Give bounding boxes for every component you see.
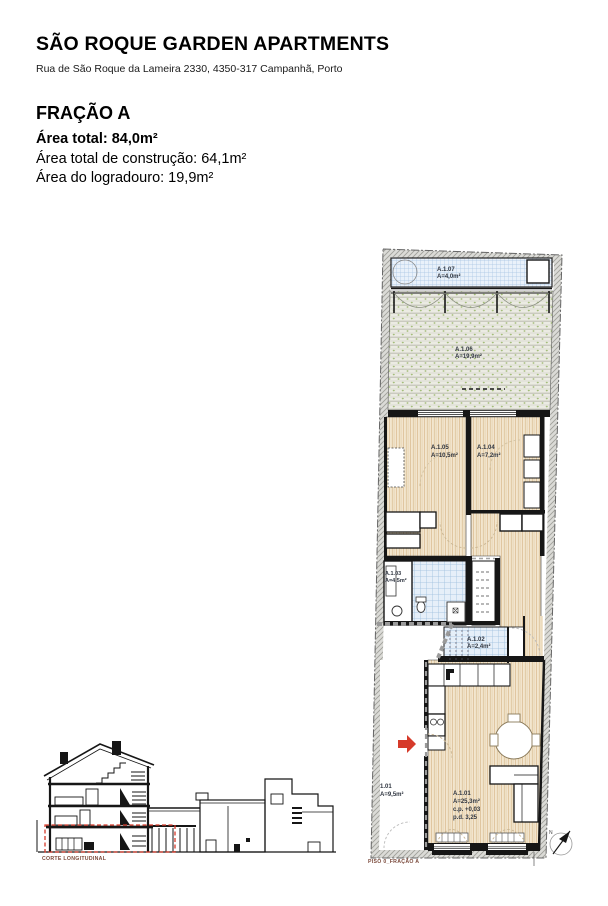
datasheet-page: SÃO ROQUE GARDEN APARTMENTS Rua de São R…: [0, 0, 608, 906]
section-caption: CORTE LONGITUDINAL: [42, 856, 107, 862]
kitchen-sink: [428, 714, 445, 736]
section-annex: [148, 779, 333, 852]
wardrobe-dashed: [388, 448, 404, 487]
sofa-chaise: [514, 784, 538, 822]
room-storage: [472, 561, 495, 625]
annex-ladder: [292, 808, 302, 823]
dining-table: [495, 721, 533, 759]
label-a101-area: A=25,3m²: [453, 798, 480, 805]
label-a106-area: A=19,9m²: [455, 353, 482, 360]
label-a103-id: A.1.03: [385, 571, 401, 577]
label-a106-id: A.1.06: [455, 347, 473, 353]
label-a107-id: A.1.07: [437, 267, 455, 273]
label-a101-cp: c.p. +0,03: [453, 807, 481, 813]
label-a107-area: A=4,0m²: [437, 273, 461, 280]
garden-wall-windows: [388, 410, 550, 417]
attic-stair: [96, 763, 126, 783]
drawings-canvas: A.1.07 A=4,0m² A.1.06 A=19,9m² A.1.05 A=…: [0, 0, 608, 906]
north-arrow-icon: N: [549, 830, 572, 855]
plan-caption: PISO 0_FRAÇÃO A: [368, 858, 419, 865]
label-a105-id: A.1.05: [431, 445, 449, 451]
label-a102-id: A.1.02: [467, 637, 485, 643]
terrace-box: [527, 260, 549, 283]
label-a104-id: A.1.04: [477, 445, 495, 451]
chimney: [60, 752, 68, 764]
label-101-area: A=9,5m²: [380, 791, 404, 798]
floor-plan: A.1.07 A=4,0m² A.1.06 A=19,9m² A.1.05 A=…: [368, 249, 572, 866]
label-a102-area: A=2,4m²: [467, 643, 491, 650]
chimney: [112, 741, 121, 755]
toilet: [417, 602, 425, 613]
section-main-house: [44, 741, 154, 852]
north-letter: N: [549, 830, 553, 836]
shower-tray: [447, 602, 465, 622]
label-a101-id: A.1.01: [453, 791, 471, 797]
kitchen-counter-top: [428, 664, 510, 686]
label-a101-pd: p.d. 3,25: [453, 815, 478, 821]
label-a105-area: A=10,5m²: [431, 452, 458, 459]
section-drawing: CORTE LONGITUDINAL: [37, 741, 336, 862]
label-a103-area: A=4,5m²: [385, 577, 407, 584]
room-101-common: [380, 660, 424, 850]
label-101-id: 1.01: [380, 784, 392, 790]
tall-annex-outline: [265, 779, 333, 852]
label-a104-area: A=7,2m²: [477, 452, 501, 459]
